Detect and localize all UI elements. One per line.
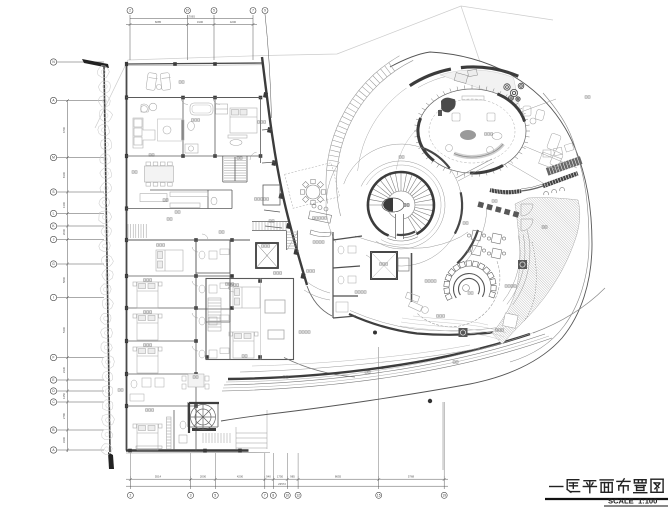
svg-text:2780: 2780 bbox=[62, 412, 66, 419]
svg-text:19: 19 bbox=[442, 493, 446, 497]
svg-text:10: 10 bbox=[286, 493, 290, 497]
svg-text:5300: 5300 bbox=[62, 326, 66, 333]
svg-text:7: 7 bbox=[252, 9, 254, 13]
svg-text:5768: 5768 bbox=[408, 475, 415, 479]
svg-text:E: E bbox=[52, 378, 54, 382]
svg-text:1300: 1300 bbox=[62, 201, 66, 208]
svg-text:10: 10 bbox=[186, 9, 190, 13]
svg-text:15: 15 bbox=[377, 493, 381, 497]
svg-text:3300: 3300 bbox=[62, 436, 66, 443]
svg-text:2330: 2330 bbox=[62, 366, 66, 373]
svg-text:3100: 3100 bbox=[197, 20, 204, 24]
svg-text:8655: 8655 bbox=[335, 475, 342, 479]
svg-text:4200: 4200 bbox=[237, 475, 244, 479]
svg-text:17065: 17065 bbox=[187, 15, 195, 19]
svg-text:23572: 23572 bbox=[278, 482, 286, 486]
svg-text:985: 985 bbox=[290, 475, 295, 479]
svg-text:5: 5 bbox=[213, 9, 215, 13]
svg-text:SCALE 1:100: SCALE 1:100 bbox=[608, 497, 657, 506]
svg-text:6085: 6085 bbox=[155, 20, 162, 24]
svg-text:9: 9 bbox=[264, 9, 266, 13]
svg-text:4200: 4200 bbox=[230, 20, 237, 24]
svg-text:B: B bbox=[52, 428, 54, 432]
svg-text:S: S bbox=[52, 190, 54, 194]
svg-text:2000: 2000 bbox=[62, 228, 66, 235]
svg-text:3: 3 bbox=[190, 493, 192, 497]
svg-text:2: 2 bbox=[130, 493, 132, 497]
svg-text:2000: 2000 bbox=[200, 475, 207, 479]
svg-text:12: 12 bbox=[296, 493, 300, 497]
svg-text:7: 7 bbox=[264, 493, 266, 497]
svg-text:6700: 6700 bbox=[62, 126, 66, 133]
svg-text:I: I bbox=[53, 296, 54, 300]
svg-text:2: 2 bbox=[129, 9, 131, 13]
svg-text:8: 8 bbox=[272, 493, 274, 497]
svg-text:8100: 8100 bbox=[62, 171, 66, 178]
svg-text:L: L bbox=[53, 212, 55, 216]
svg-text:F: F bbox=[53, 356, 55, 360]
svg-text:5: 5 bbox=[214, 493, 216, 497]
svg-text:940: 940 bbox=[266, 475, 271, 479]
svg-text:5800: 5800 bbox=[62, 276, 66, 283]
svg-text:M: M bbox=[52, 156, 55, 160]
svg-text:1450: 1450 bbox=[62, 392, 66, 399]
svg-text:5514: 5514 bbox=[155, 475, 162, 479]
svg-text:1750: 1750 bbox=[277, 475, 284, 479]
